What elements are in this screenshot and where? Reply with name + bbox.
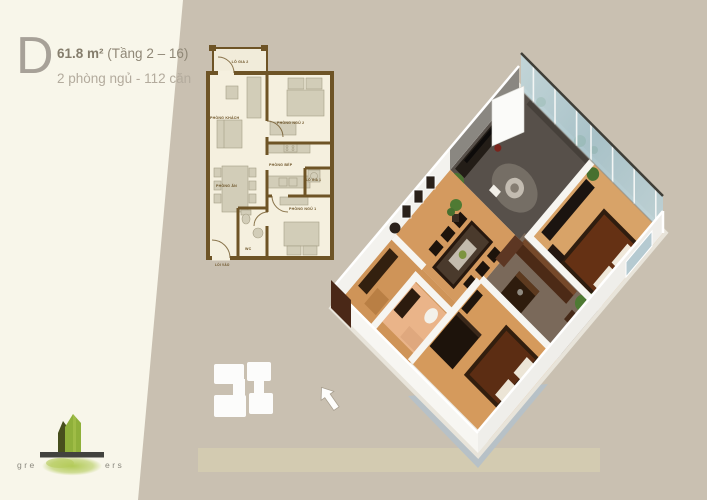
apartment-type-letter: D <box>16 30 54 82</box>
render-3d <box>328 53 668 468</box>
label-balcony1: LÔ GIA 1 <box>306 177 321 182</box>
label-bedroom1: PHÒNG NGỦ 1 <box>289 206 316 211</box>
label-bedroom2: PHÒNG NGỦ 2 <box>277 120 304 125</box>
apartment-summary: 2 phòng ngủ - 112 căn <box>57 71 191 86</box>
logo-text-right: ers <box>105 460 124 470</box>
brochure-page: LÔ GIA 2 PHÒNG KHÁCH PHÒNG NGỦ 2 PHÒNG B… <box>0 0 707 500</box>
logo-text-left: gre <box>17 460 37 470</box>
header: D 61.8 m² (Tầng 2 – 16) 2 phòng ngủ - 11… <box>0 0 220 110</box>
apartment-floor-range: (Tầng 2 – 16) <box>107 46 188 61</box>
floorplan-2d: LÔ GIA 2 PHÒNG KHÁCH PHÒNG NGỦ 2 PHÒNG B… <box>208 45 332 267</box>
label-kitchen: PHÒNG BẾP <box>269 162 293 167</box>
label-wc: WC <box>245 247 252 251</box>
label-balcony2: LÔ GIA 2 <box>232 59 249 64</box>
watermark-band <box>198 448 600 472</box>
apartment-specs: 61.8 m² (Tầng 2 – 16) <box>57 46 188 61</box>
label-dining: PHÒNG ĂN <box>216 183 237 188</box>
label-living: PHÒNG KHÁCH <box>210 115 240 120</box>
label-entrance: LỐI VÀO <box>215 262 230 267</box>
logo-bar <box>40 452 104 458</box>
direction-arrow-icon <box>321 387 339 410</box>
site-key-plan <box>214 362 273 417</box>
apartment-area: 61.8 m² <box>57 46 104 61</box>
